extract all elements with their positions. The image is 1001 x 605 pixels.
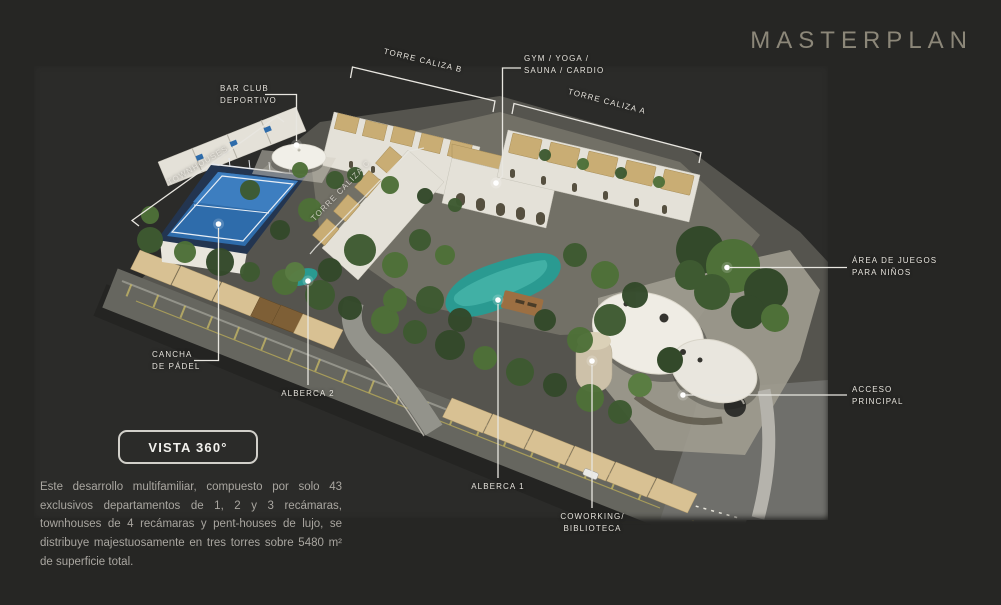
callout-label-acceso-principal: ACCESO PRINCIPAL [852,384,904,407]
callout-label-area-de-juegos: ÁREA DE JUEGOS PARA NIÑOS [852,255,937,278]
callout-label-alberca-2: ALBERCA 2 [268,388,348,400]
callout-label-gym-yoga-sauna-cardio: GYM / YOGA / SAUNA / CARDIO [524,53,604,76]
page-title: MASTERPLAN [750,27,973,55]
callout-label-bar-club-deportivo: BAR CLUB DEPORTIVO [220,83,277,106]
project-description: Este desarrollo multifamiliar, compuesto… [40,478,342,571]
callout-dots [213,140,733,401]
callout-label-alberca-1: ALBERCA 1 [458,481,538,493]
callout-label-cancha-de-padel: CANCHA DE PÁDEL [152,349,200,372]
callout-label-coworking-biblioteca: COWORKING/ BIBLIOTECA [550,511,635,534]
vista-360-button[interactable]: VISTA 360° [118,430,258,464]
masterplan-slide: TORRE CALIZA B GYM / YOGA / SAUNA / CARD… [0,0,1001,605]
